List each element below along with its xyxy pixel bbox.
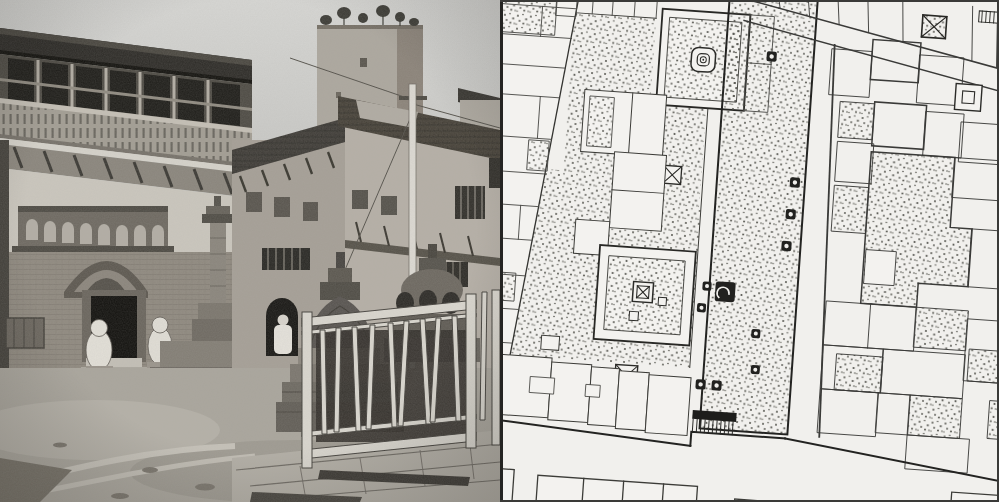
topright-chaitya-symbol xyxy=(954,83,982,111)
chaitya-symbol xyxy=(690,47,716,73)
topright-xbox xyxy=(921,15,946,39)
plan-panel xyxy=(500,0,999,502)
temple-courtyard xyxy=(594,245,696,345)
photo-panel xyxy=(0,0,500,502)
temple-symbol xyxy=(632,281,653,302)
vignette xyxy=(0,0,500,502)
figure-plate xyxy=(0,0,999,502)
